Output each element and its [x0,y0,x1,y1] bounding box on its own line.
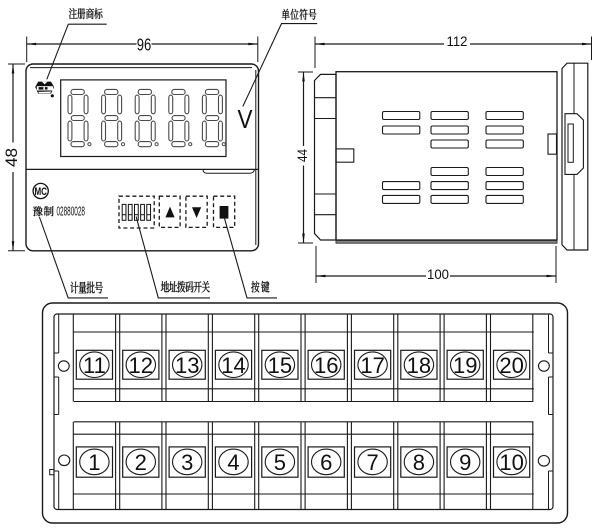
svg-text:15: 15 [268,353,292,378]
svg-text:11: 11 [83,353,106,378]
svg-text:1: 1 [88,450,100,475]
svg-text:5: 5 [274,450,286,475]
svg-text:16: 16 [314,353,338,378]
svg-text:MC: MC [34,186,47,198]
svg-text:17: 17 [360,353,384,378]
svg-text:96: 96 [137,34,152,54]
svg-text:44: 44 [294,149,310,162]
svg-text:13: 13 [175,353,199,378]
svg-text:9: 9 [459,450,471,475]
svg-text:12: 12 [129,353,153,378]
svg-text:100: 100 [427,266,449,282]
svg-text:8: 8 [413,450,425,475]
svg-text:10: 10 [499,450,523,475]
svg-text:4: 4 [227,450,239,475]
svg-text:18: 18 [407,353,431,378]
svg-text:6: 6 [320,450,332,475]
svg-text:112: 112 [447,33,468,49]
svg-text:19: 19 [453,353,477,378]
svg-text:02880028: 02880028 [57,205,86,219]
svg-text:20: 20 [499,353,523,378]
svg-text:3: 3 [181,450,193,475]
svg-text:V: V [238,104,254,134]
svg-text:48: 48 [2,148,21,167]
svg-text:7: 7 [366,450,378,475]
svg-text:14: 14 [221,353,245,378]
svg-text:2: 2 [135,450,147,475]
